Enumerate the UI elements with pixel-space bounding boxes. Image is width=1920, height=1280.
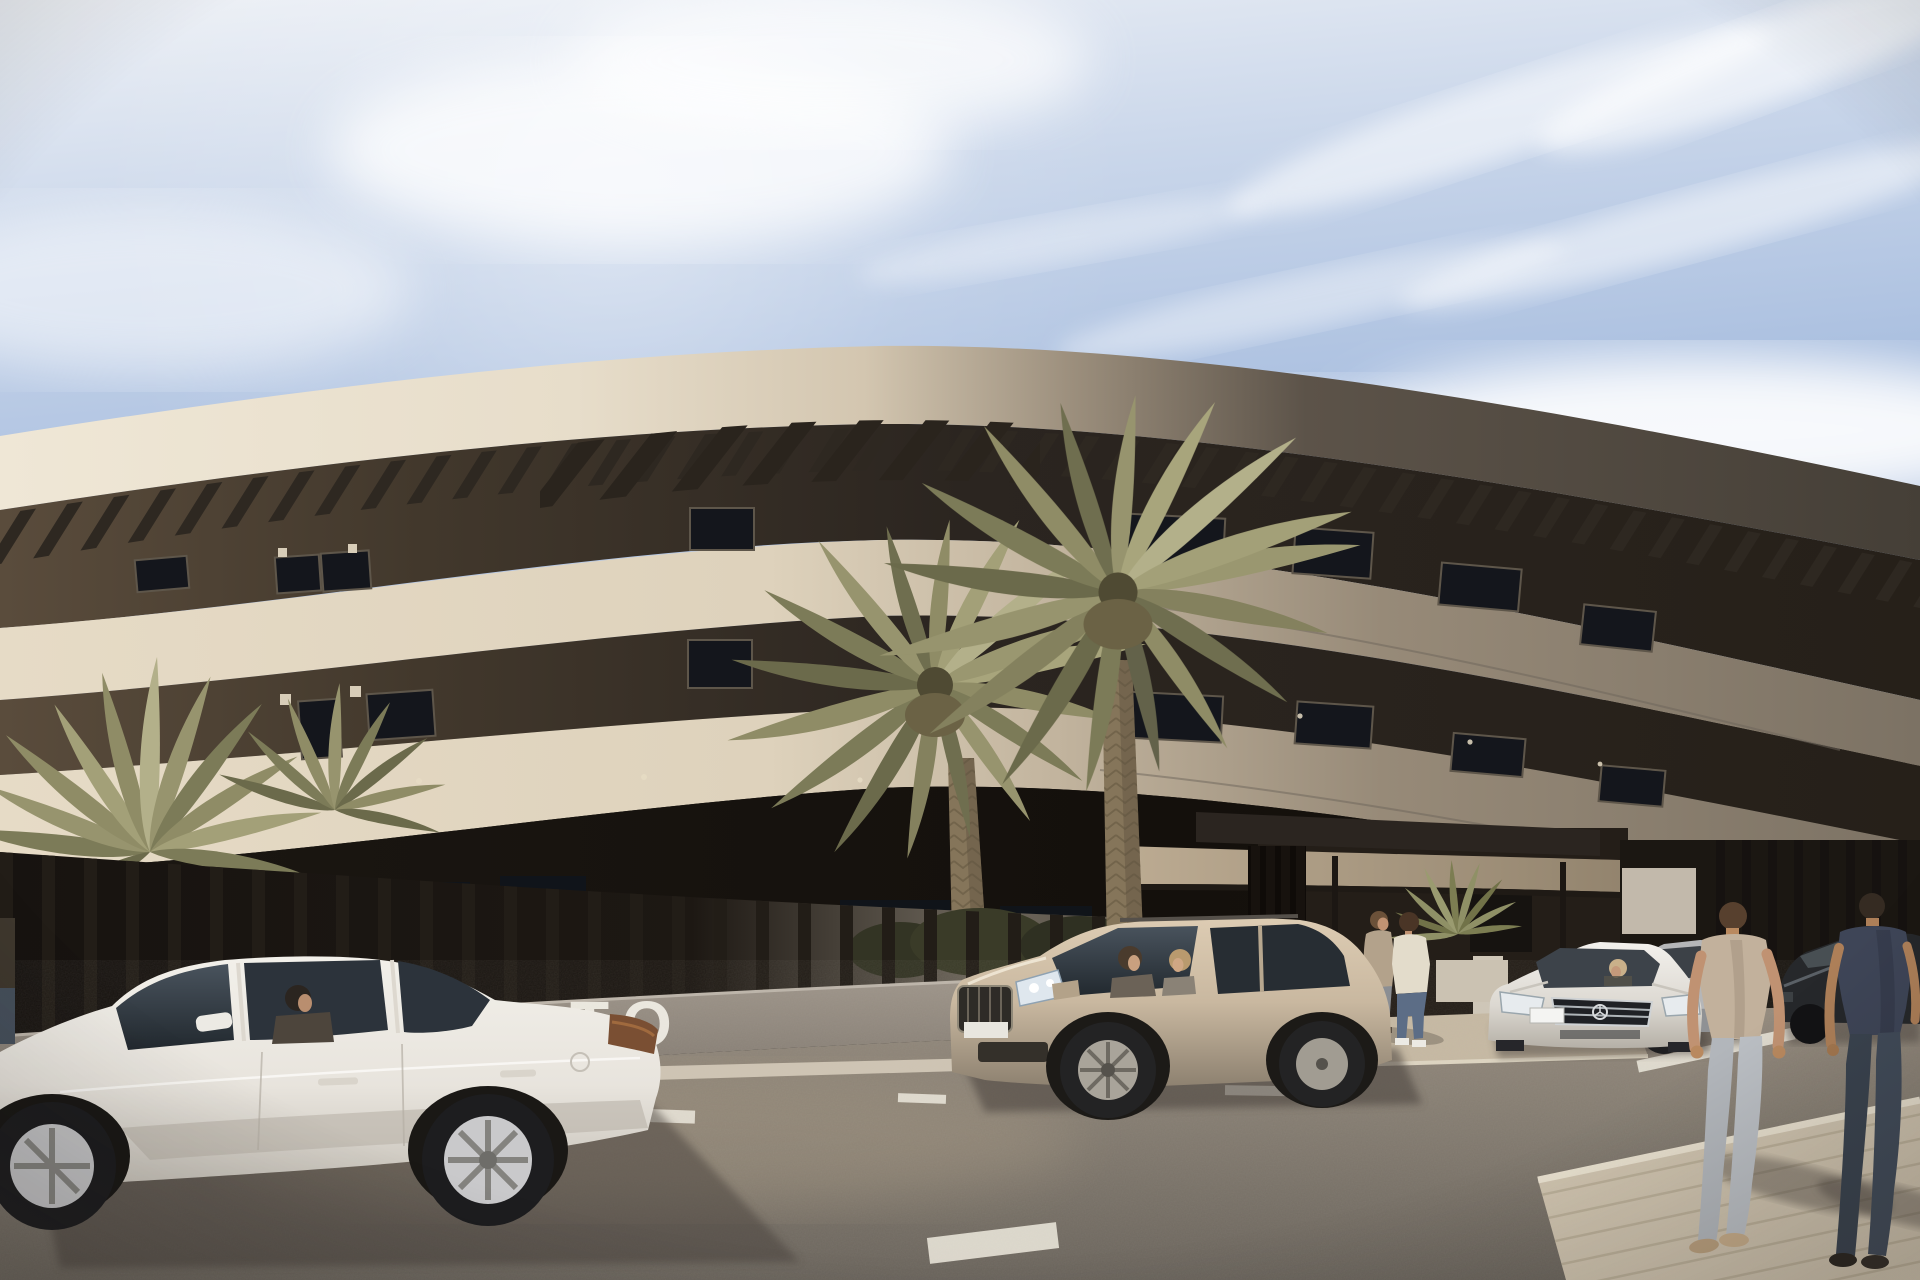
vignette [0,0,1920,1280]
scene-canvas: TO [0,0,1920,1280]
architectural-rendering: Sunny photorealistic architectural rende… [0,0,1920,1280]
